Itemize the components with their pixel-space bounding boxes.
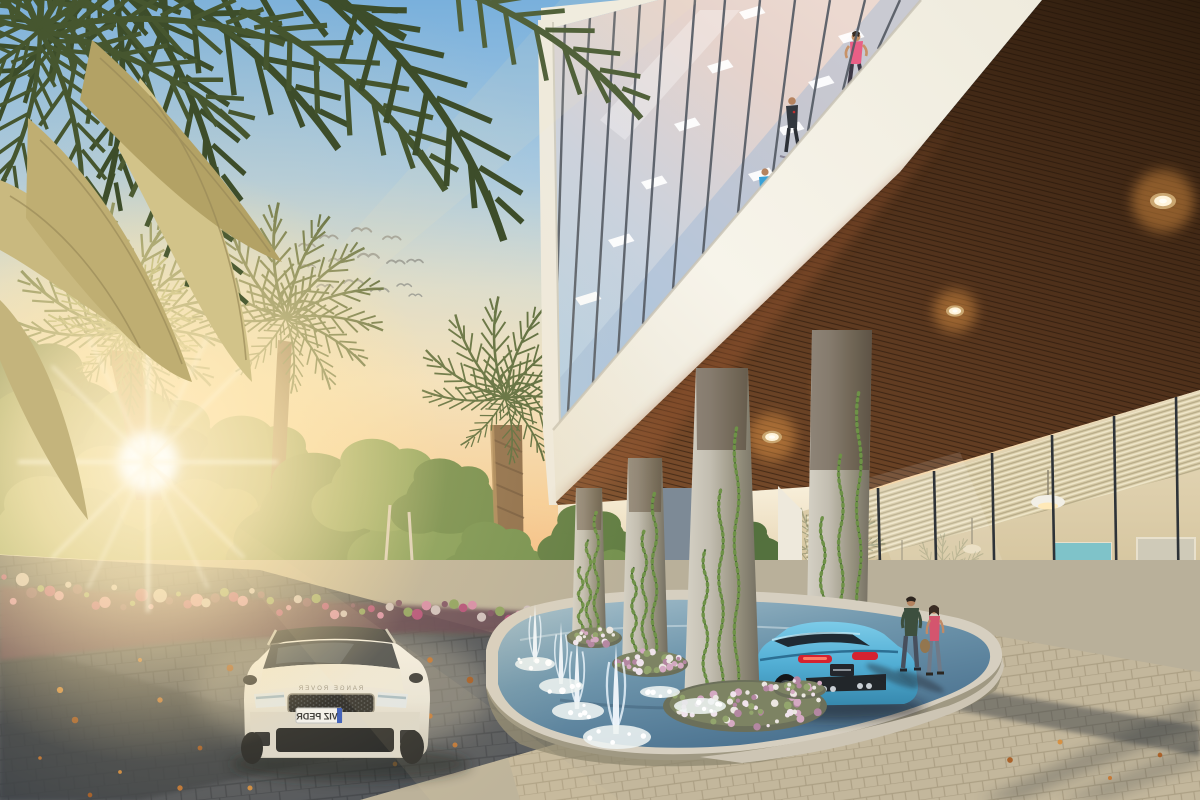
flower — [749, 711, 753, 715]
column-top-shade — [810, 330, 872, 470]
flower — [727, 699, 733, 705]
flower — [644, 669, 649, 674]
flower — [745, 690, 749, 694]
flower — [660, 666, 667, 673]
flower — [766, 724, 769, 727]
flower — [626, 657, 630, 661]
flower — [748, 703, 754, 709]
recessed-light — [748, 413, 796, 461]
recessed-light — [1132, 170, 1194, 232]
flower — [744, 702, 749, 707]
flower — [736, 699, 740, 703]
shopping-bag — [920, 639, 930, 653]
flower — [680, 695, 686, 701]
flower — [730, 691, 736, 697]
fallen-leaf — [1108, 776, 1112, 780]
flower — [627, 664, 632, 669]
flower — [734, 710, 742, 718]
flower — [617, 663, 621, 667]
flower — [796, 683, 801, 688]
flower — [763, 685, 769, 691]
exhaust-tip — [857, 683, 863, 689]
flower — [678, 663, 684, 669]
flower — [643, 650, 650, 657]
wall-art-sky — [1055, 543, 1111, 561]
flower — [793, 679, 796, 682]
flower — [677, 657, 681, 661]
flower — [771, 699, 779, 707]
architectural-rendering: RANGE ROVER VIZ PEDR — [0, 0, 1200, 800]
flower — [787, 688, 790, 691]
exhaust-tip — [866, 683, 872, 689]
flower — [775, 719, 779, 723]
flower — [790, 690, 795, 695]
fallen-leaf — [1058, 740, 1063, 745]
flower — [811, 693, 815, 697]
flower — [666, 664, 673, 671]
fallen-leaf — [1158, 753, 1163, 758]
taillight-right — [852, 652, 878, 660]
fallen-leaf — [1007, 757, 1013, 763]
exhaust-tip — [830, 686, 836, 692]
recessed-light — [933, 289, 976, 332]
flower — [683, 660, 687, 664]
flower — [802, 693, 806, 697]
flower — [758, 709, 763, 714]
flower — [753, 723, 760, 730]
foam-splash — [583, 725, 651, 749]
flower — [803, 684, 810, 691]
support-column-3 — [684, 368, 760, 705]
foam-splash — [674, 698, 726, 714]
flower — [816, 698, 821, 703]
flower — [666, 659, 671, 664]
flower — [792, 710, 797, 715]
flower — [654, 667, 660, 673]
flower — [787, 683, 791, 687]
flower — [784, 701, 792, 709]
flower — [751, 695, 756, 700]
flower — [773, 684, 779, 690]
flower — [817, 681, 822, 686]
pendant-glow — [1038, 503, 1058, 510]
rendering-viewport: RANGE ROVER VIZ PEDR — [0, 0, 1200, 800]
flower — [636, 659, 644, 667]
flower — [636, 668, 643, 675]
flower — [812, 686, 816, 690]
flower — [710, 718, 716, 724]
flower — [733, 703, 738, 708]
foam-splash — [640, 686, 680, 698]
flower — [814, 708, 822, 716]
flower — [722, 716, 728, 722]
taillight-glow — [803, 657, 827, 660]
